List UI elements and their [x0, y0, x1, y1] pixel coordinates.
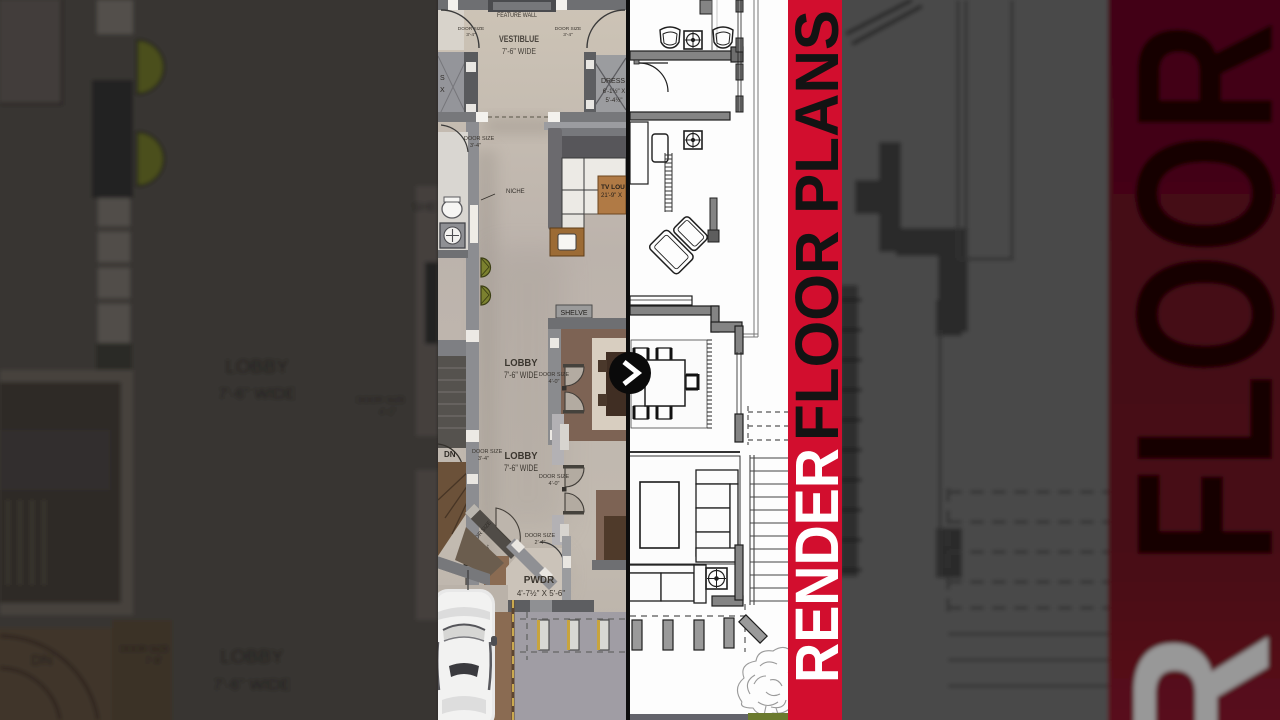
svg-text:R: R [1092, 633, 1280, 720]
svg-text:7'-6" WIDE: 7'-6" WIDE [213, 677, 291, 694]
svg-text:DRESS: DRESS [601, 78, 625, 85]
svg-text:DOOR SIZE: DOOR SIZE [458, 26, 484, 32]
svg-text:3'-4": 3'-4" [563, 32, 573, 38]
svg-text:LOBBY: LOBBY [225, 357, 289, 378]
svg-text:X: X [440, 87, 445, 94]
svg-text:5'-4½": 5'-4½" [606, 97, 623, 104]
svg-text:NICHE: NICHE [506, 189, 525, 195]
svg-text:DOOR SIZE: DOOR SIZE [464, 136, 495, 142]
svg-text:3'-4": 3'-4" [470, 143, 481, 149]
svg-text:7'-6" WIDE: 7'-6" WIDE [502, 47, 536, 56]
svg-text:DOOR SIZE: DOOR SIZE [539, 372, 570, 378]
svg-text:7'-8": 7'-8" [145, 656, 163, 666]
svg-text:LOBBY: LOBBY [505, 357, 538, 369]
svg-text:FEATURE WALL: FEATURE WALL [497, 13, 538, 19]
svg-text:RENDER: RENDER [783, 448, 851, 683]
svg-text:3'-4": 3'-4" [466, 32, 476, 38]
svg-text:DOOR SIZE: DOOR SIZE [356, 395, 406, 405]
svg-text:4'-7½" X 5'-6": 4'-7½" X 5'-6" [517, 589, 565, 598]
svg-text:DOOR SIZE: DOOR SIZE [539, 474, 570, 480]
svg-text:7'-6" WIDE: 7'-6" WIDE [218, 386, 296, 403]
svg-text:6'-1½" X: 6'-1½" X [603, 88, 626, 95]
svg-text:2'-4": 2'-4" [535, 540, 546, 546]
svg-text:TV LOU: TV LOU [601, 184, 625, 191]
svg-text:VESTIBLUE: VESTIBLUE [499, 34, 539, 44]
svg-text:3'-4": 3'-4" [478, 456, 489, 462]
svg-text:FLOOR: FLOOR [1096, 21, 1280, 564]
svg-text:DOOR SIZE: DOOR SIZE [525, 533, 556, 539]
svg-text:4'-0": 4'-0" [549, 481, 560, 487]
svg-text:SHELVE: SHELVE [560, 310, 587, 317]
svg-text:21'-9" X: 21'-9" X [601, 193, 622, 199]
svg-text:DOOR SIZE: DOOR SIZE [120, 644, 170, 654]
svg-text:7'-6" WIDE: 7'-6" WIDE [504, 370, 538, 380]
svg-text:7'-6" WIDE: 7'-6" WIDE [504, 463, 538, 473]
svg-text:SHE: SHE [412, 200, 437, 214]
svg-text:S: S [440, 75, 445, 82]
svg-text:DOOR SIZE: DOOR SIZE [472, 449, 503, 455]
svg-text:LOBBY: LOBBY [220, 647, 284, 668]
svg-text:DN: DN [31, 652, 53, 669]
svg-text:DOOR SIZE: DOOR SIZE [555, 26, 581, 32]
svg-text:4'-0": 4'-0" [549, 379, 560, 385]
svg-text:4'-2": 4'-2" [379, 407, 397, 417]
svg-text:FLOOR PLANS: FLOOR PLANS [783, 10, 851, 441]
svg-text:PWDR: PWDR [524, 575, 555, 586]
svg-text:LOBBY: LOBBY [505, 450, 538, 462]
